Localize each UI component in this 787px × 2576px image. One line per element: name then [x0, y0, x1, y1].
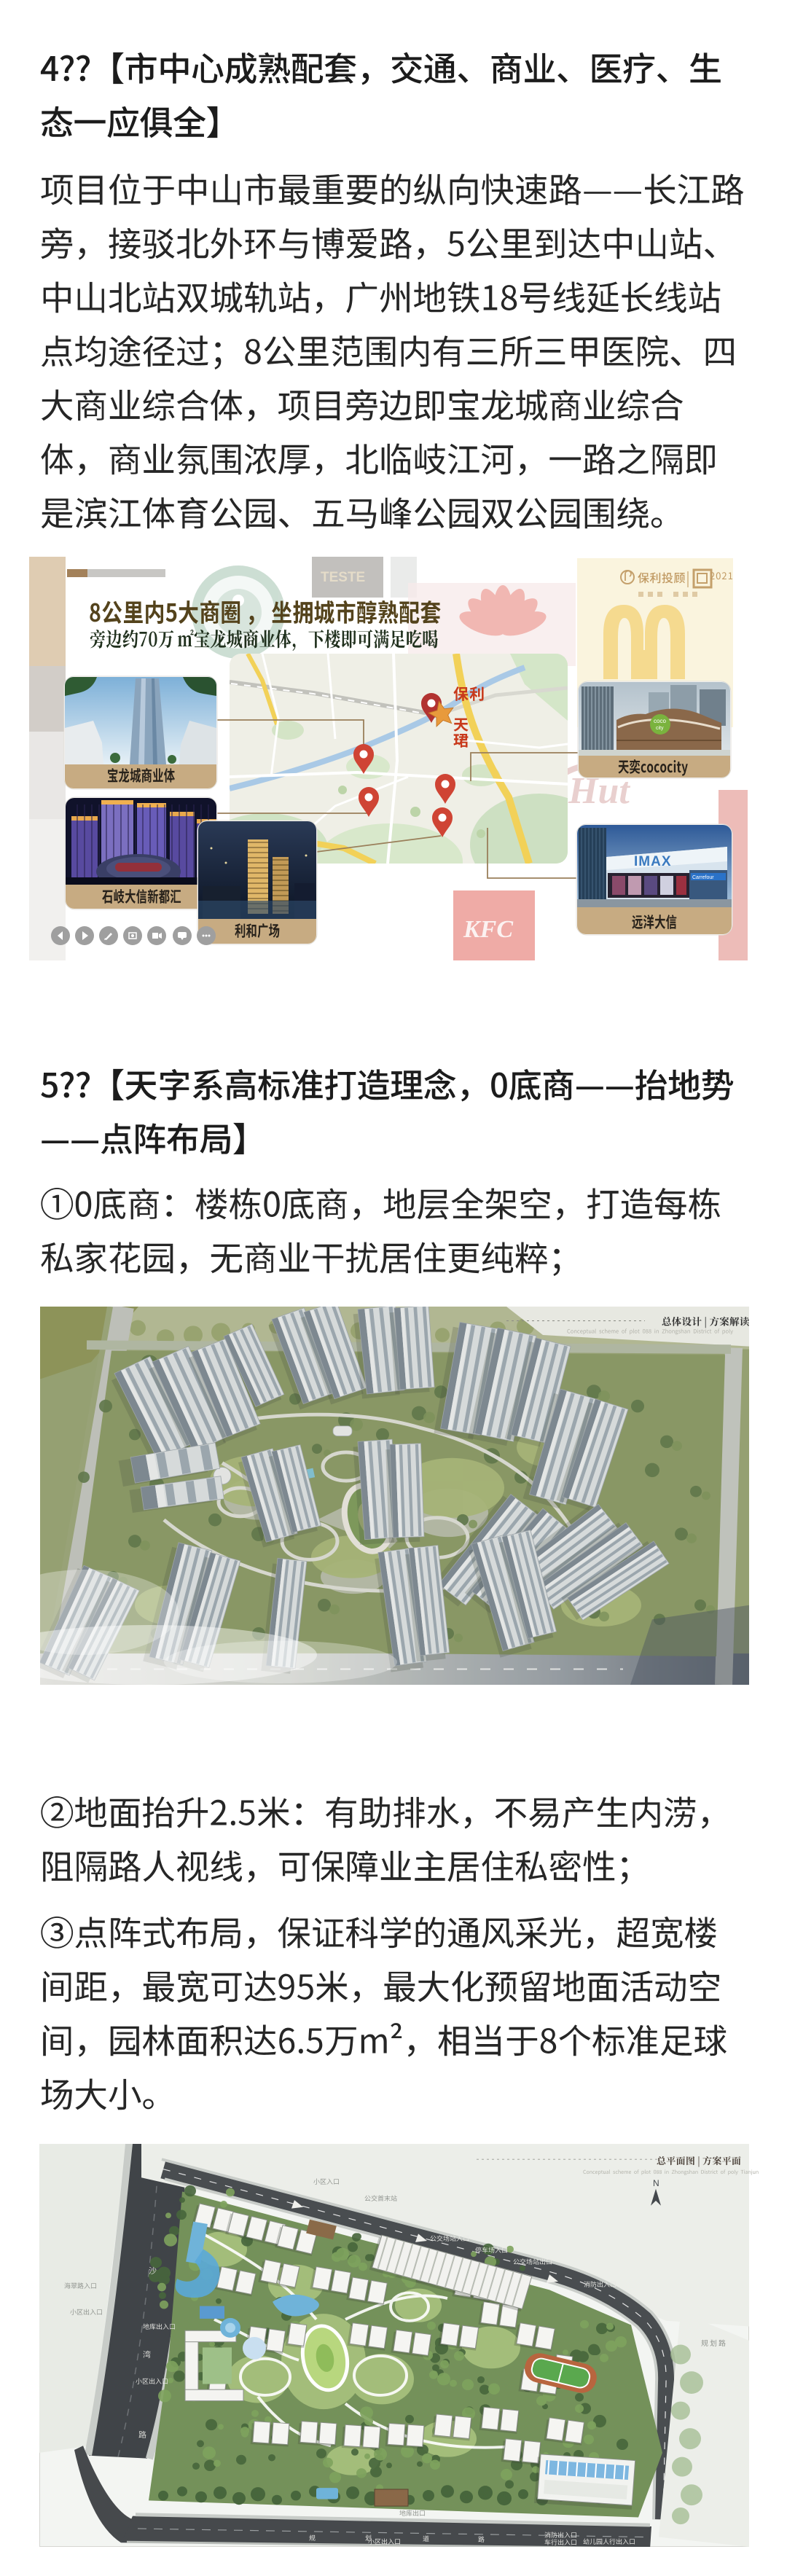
svg-text:coco: coco	[654, 718, 666, 724]
svg-text:KFC: KFC	[463, 916, 513, 943]
svg-text:TESTE: TESTE	[321, 570, 365, 585]
svg-text:N: N	[653, 2179, 659, 2188]
svg-text:Carrefour: Carrefour	[692, 875, 714, 880]
svg-text:IMAX: IMAX	[634, 854, 672, 869]
svg-text:city: city	[656, 726, 664, 731]
